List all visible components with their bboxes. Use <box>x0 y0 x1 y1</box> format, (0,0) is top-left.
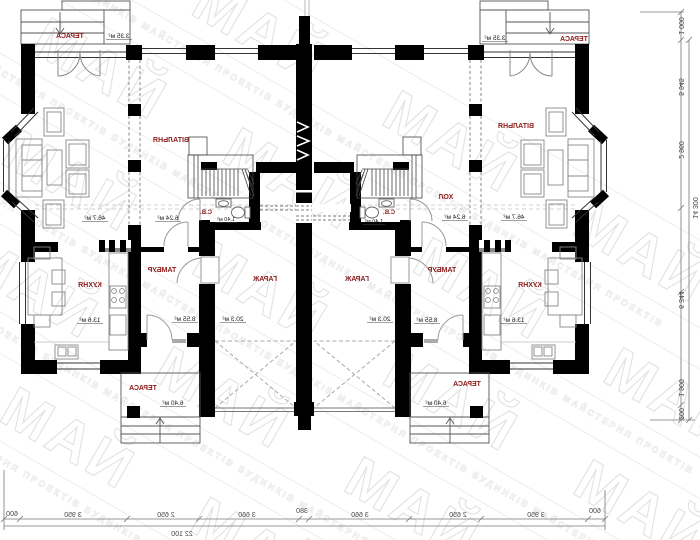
svg-text:20.3 м²: 20.3 м² <box>369 316 391 323</box>
svg-text:С.В.: С.В. <box>200 210 212 216</box>
svg-text:46.7 м²: 46.7 м² <box>84 215 106 222</box>
svg-text:20.3 м²: 20.3 м² <box>222 316 244 323</box>
svg-text:1.40 м²: 1.40 м² <box>217 217 235 223</box>
svg-text:6.40 м²: 6.40 м² <box>162 400 184 407</box>
svg-text:6.24 м²: 6.24 м² <box>444 214 466 221</box>
svg-text:6 344: 6 344 <box>677 291 684 309</box>
svg-text:380: 380 <box>296 508 308 515</box>
svg-text:ГАРАЖ: ГАРАЖ <box>252 276 277 283</box>
svg-text:С.В.: С.В. <box>383 210 395 216</box>
svg-text:5 945: 5 945 <box>677 78 684 96</box>
svg-text:3 950: 3 950 <box>64 512 82 519</box>
svg-text:13.6 м²: 13.6 м² <box>503 317 525 324</box>
svg-text:ТЕРАСА: ТЕРАСА <box>560 36 588 43</box>
svg-text:ТЕРАСА: ТЕРАСА <box>453 381 481 388</box>
svg-text:ВІТАЛЬНЯ: ВІТАЛЬНЯ <box>153 137 189 144</box>
svg-text:3.35 м²: 3.35 м² <box>108 33 130 40</box>
svg-text:3 660: 3 660 <box>351 512 369 519</box>
svg-text:8.55 м²: 8.55 м² <box>416 317 438 324</box>
svg-text:200: 200 <box>677 408 684 420</box>
svg-text:14 300: 14 300 <box>691 197 698 219</box>
svg-text:ХОЛ: ХОЛ <box>439 194 454 201</box>
svg-text:2 650: 2 650 <box>449 512 467 519</box>
svg-text:ТАМБУР: ТАМБУР <box>147 267 176 274</box>
svg-text:600: 600 <box>589 508 601 515</box>
svg-text:1 900: 1 900 <box>677 379 684 397</box>
svg-text:1.40 м²: 1.40 м² <box>365 219 383 225</box>
svg-text:КУХНЯ: КУХНЯ <box>78 282 102 289</box>
svg-text:ТЕРАСА: ТЕРАСА <box>56 33 84 40</box>
svg-text:ГАРАЖ: ГАРАЖ <box>344 276 369 283</box>
svg-text:3 950: 3 950 <box>527 512 545 519</box>
svg-text:3.35 м²: 3.35 м² <box>484 35 506 42</box>
svg-text:8.55 м²: 8.55 м² <box>174 316 196 323</box>
svg-text:ВІТАЛЬНЯ: ВІТАЛЬНЯ <box>498 123 534 130</box>
svg-text:ТАМБУР: ТАМБУР <box>427 267 456 274</box>
svg-text:46.7 м²: 46.7 м² <box>503 214 525 221</box>
svg-text:6.24 м²: 6.24 м² <box>157 215 179 222</box>
svg-text:3 660: 3 660 <box>238 512 256 519</box>
svg-text:2 650: 2 650 <box>157 512 175 519</box>
svg-text:1 000: 1 000 <box>677 17 684 35</box>
svg-text:6.40 м²: 6.40 м² <box>425 400 447 407</box>
svg-text:КУХНЯ: КУХНЯ <box>518 282 542 289</box>
svg-text:13.6 м²: 13.6 м² <box>79 317 101 324</box>
svg-text:22 100: 22 100 <box>171 531 193 538</box>
svg-text:ТЕРАСА: ТЕРАСА <box>129 385 157 392</box>
svg-text:600: 600 <box>6 511 18 518</box>
svg-text:2 960: 2 960 <box>677 141 684 159</box>
